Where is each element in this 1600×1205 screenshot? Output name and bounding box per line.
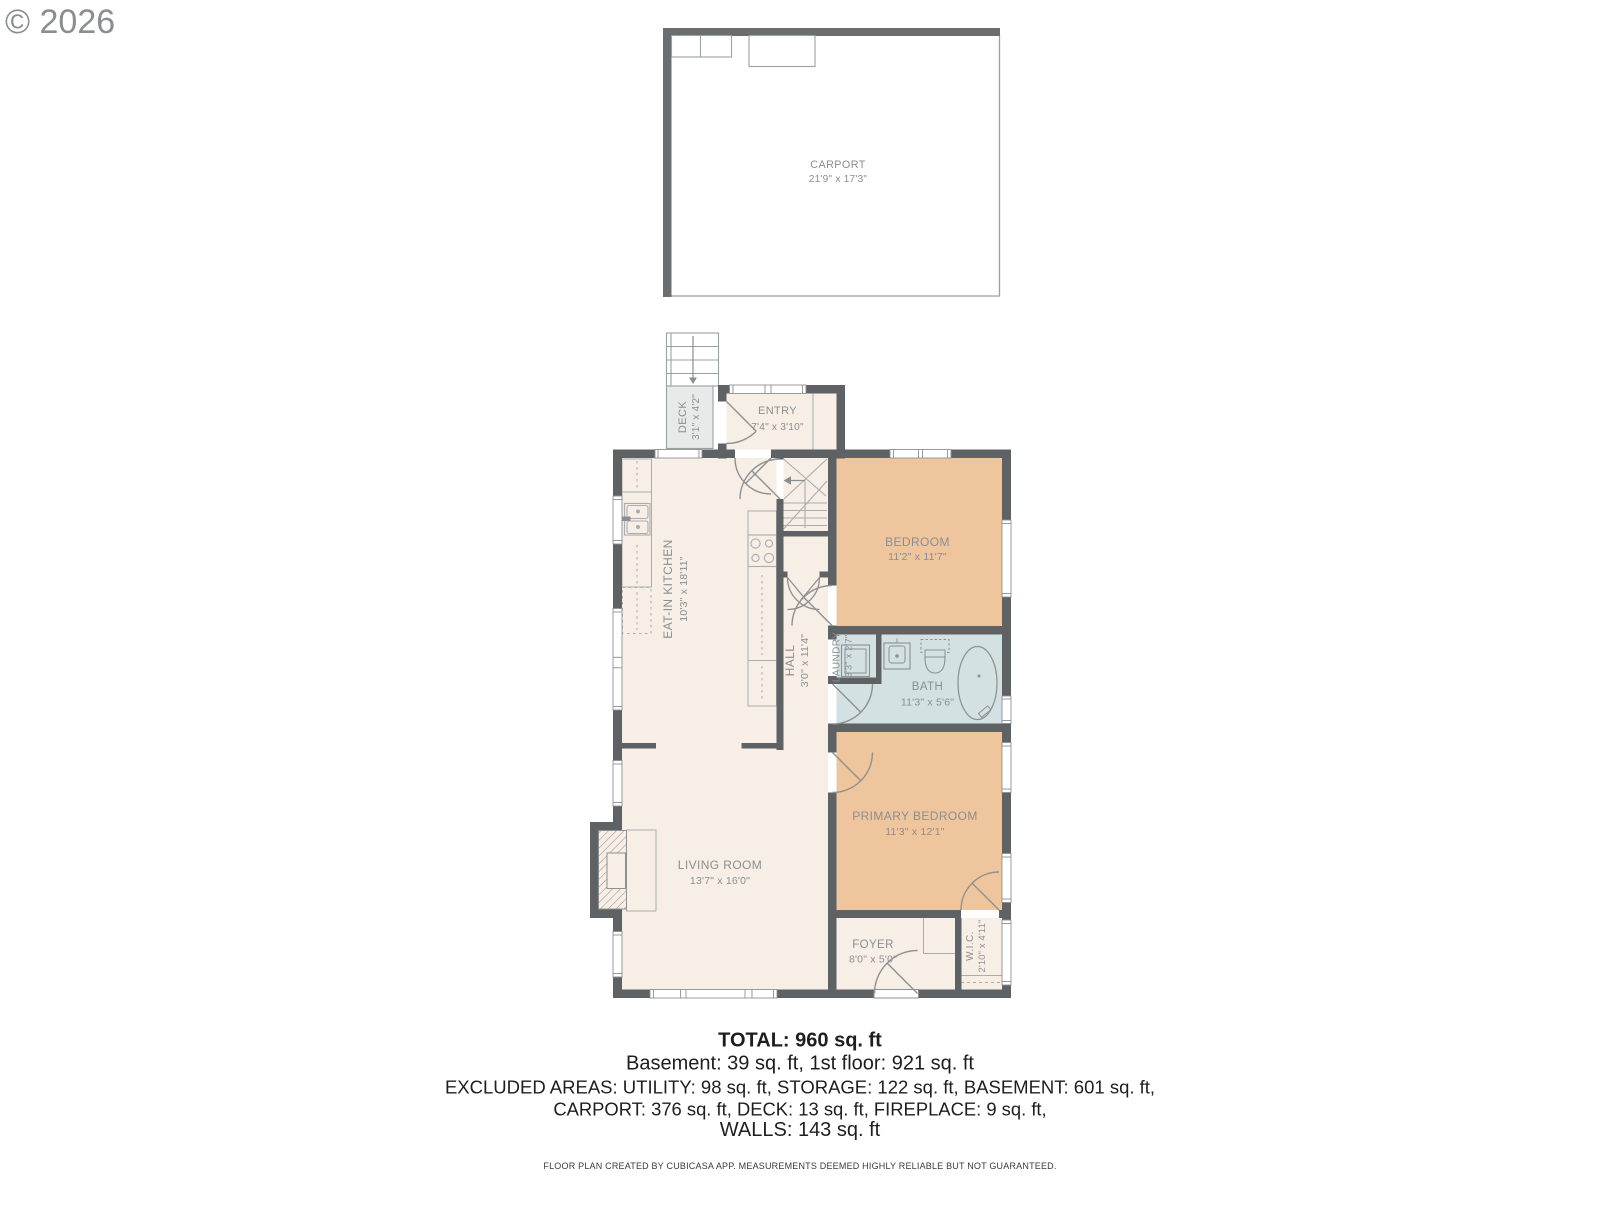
svg-text:HALL: HALL [783, 645, 797, 677]
svg-text:11'3" x 5'6": 11'3" x 5'6" [901, 697, 954, 709]
svg-text:LAUNDRY: LAUNDRY [832, 632, 843, 682]
svg-text:© 2026: © 2026 [5, 3, 115, 41]
svg-text:EXCLUDED AREAS: UTILITY: 98 sq: EXCLUDED AREAS: UTILITY: 98 sq. ft, STOR… [445, 1077, 1155, 1098]
svg-text:BATH: BATH [912, 681, 943, 693]
svg-text:3'0" x 11'4": 3'0" x 11'4" [799, 634, 811, 687]
svg-text:11'2" x 11'7": 11'2" x 11'7" [888, 551, 947, 563]
svg-text:13'7" x 16'0": 13'7" x 16'0" [690, 875, 750, 887]
svg-text:CARPORT: 376 sq. ft, DECK: 13: CARPORT: 376 sq. ft, DECK: 13 sq. ft, FI… [553, 1099, 1046, 1120]
svg-text:3'1" x 4'2": 3'1" x 4'2" [691, 394, 702, 440]
svg-text:W.I.C.: W.I.C. [965, 931, 976, 961]
svg-text:3'3" x 2'7": 3'3" x 2'7" [844, 635, 854, 678]
svg-text:21'9" x 17'3": 21'9" x 17'3" [809, 174, 868, 185]
svg-text:Basement: 39 sq. ft, 1st floor: Basement: 39 sq. ft, 1st floor: 921 sq. … [626, 1053, 974, 1075]
svg-text:TOTAL: 960 sq. ft: TOTAL: 960 sq. ft [718, 1030, 882, 1052]
svg-text:BEDROOM: BEDROOM [885, 535, 950, 549]
svg-text:7'4" x 3'10": 7'4" x 3'10" [751, 422, 804, 433]
svg-text:10'3" x 18'11": 10'3" x 18'11" [678, 556, 690, 622]
svg-text:FLOOR PLAN CREATED BY CUBICASA: FLOOR PLAN CREATED BY CUBICASA APP. MEAS… [543, 1161, 1056, 1171]
svg-text:FOYER: FOYER [852, 939, 894, 951]
svg-text:2'10" x 4'11": 2'10" x 4'11" [977, 920, 987, 973]
svg-text:11'3" x 12'1": 11'3" x 12'1" [885, 826, 944, 838]
svg-text:8'0" x 5'0": 8'0" x 5'0" [849, 954, 897, 966]
svg-text:LIVING ROOM: LIVING ROOM [678, 858, 762, 872]
svg-text:ENTRY: ENTRY [758, 405, 797, 417]
svg-text:CARPORT: CARPORT [810, 159, 865, 171]
svg-text:WALLS: 143 sq. ft: WALLS: 143 sq. ft [720, 1119, 881, 1141]
svg-text:PRIMARY BEDROOM: PRIMARY BEDROOM [852, 809, 978, 823]
svg-text:EAT-IN KITCHEN: EAT-IN KITCHEN [661, 539, 675, 638]
svg-text:DECK: DECK [677, 401, 689, 433]
